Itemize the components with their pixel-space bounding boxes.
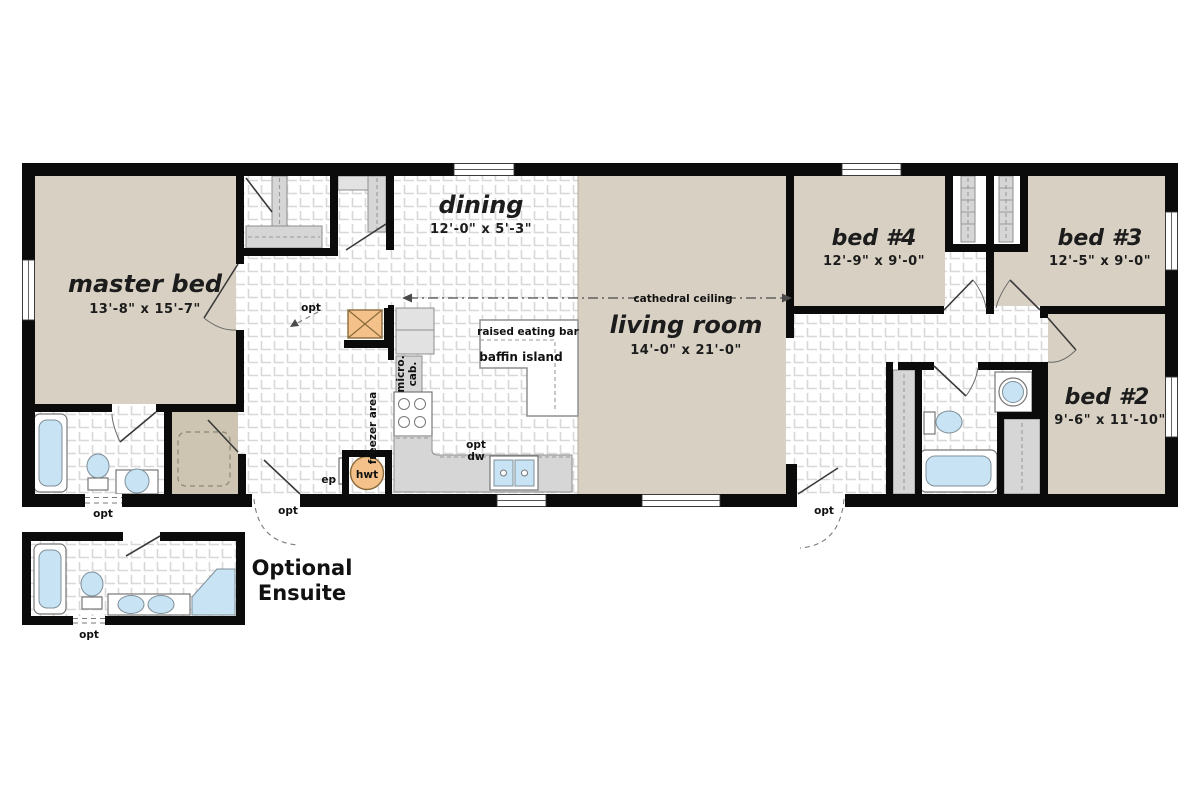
dims-dining: 12'-0" x 5'-3" (430, 222, 532, 237)
toilet (936, 411, 962, 433)
label-hwt: hwt (356, 469, 378, 481)
label-opt-wd: opt (301, 302, 321, 314)
sink (118, 596, 144, 614)
burner (399, 417, 410, 428)
label-micro-1: micro. (395, 355, 407, 392)
sink (148, 596, 174, 614)
optional-ensuite (22, 532, 245, 625)
stove (394, 392, 432, 436)
label-dining: dining (439, 191, 524, 219)
label-optional-ensuite-2: Ensuite (258, 581, 346, 605)
label-baffin-island: baffin island (479, 350, 562, 364)
sink (1003, 382, 1024, 403)
toilet (81, 572, 103, 596)
label-living-room: living room (610, 311, 763, 339)
floor-plan-svg: master bed 13'-8" x 15'-7" dining 12'-0"… (0, 0, 1200, 800)
label-bed3: bed #3 (1058, 226, 1143, 251)
entry-area (172, 412, 238, 494)
burner (415, 399, 426, 410)
sink (125, 469, 149, 493)
dims-bed4: 12'-9" x 9'-0" (823, 254, 925, 269)
label-opt-ensuite: opt (79, 629, 99, 641)
label-optional-ensuite-1: Optional (252, 556, 353, 580)
label-cathedral-ceiling: cathedral ceiling (633, 293, 732, 305)
dims-bed3: 12'-5" x 9'-0" (1049, 254, 1151, 269)
label-micro-2: cab. (407, 362, 419, 387)
dims-living-room: 14'-0" x 21'-0" (630, 343, 742, 358)
label-master-bed: master bed (68, 270, 223, 298)
fridge (396, 308, 434, 354)
label-ep: ep (321, 474, 336, 486)
label-opt-dw-1: opt (466, 439, 486, 451)
dims-bed2: 9'-6" x 11'-10" (1054, 413, 1166, 428)
label-bed2: bed #2 (1065, 385, 1150, 410)
label-opt-rightdoor: opt (814, 505, 834, 517)
label-opt-middoor: opt (278, 505, 298, 517)
floors (35, 176, 1165, 494)
burner (415, 417, 426, 428)
dims-master-bed: 13'-8" x 15'-7" (89, 302, 201, 317)
burner (399, 399, 410, 410)
label-raised-eating-bar: raised eating bar (477, 326, 579, 338)
label-opt-bath: opt (93, 508, 113, 520)
toilet (87, 454, 109, 478)
label-opt-dw-2: dw (467, 451, 485, 463)
label-bed4: bed #4 (832, 226, 917, 251)
label-freezer-area: freezer area (367, 392, 379, 465)
floor-plan-page: master bed 13'-8" x 15'-7" dining 12'-0"… (0, 0, 1200, 800)
